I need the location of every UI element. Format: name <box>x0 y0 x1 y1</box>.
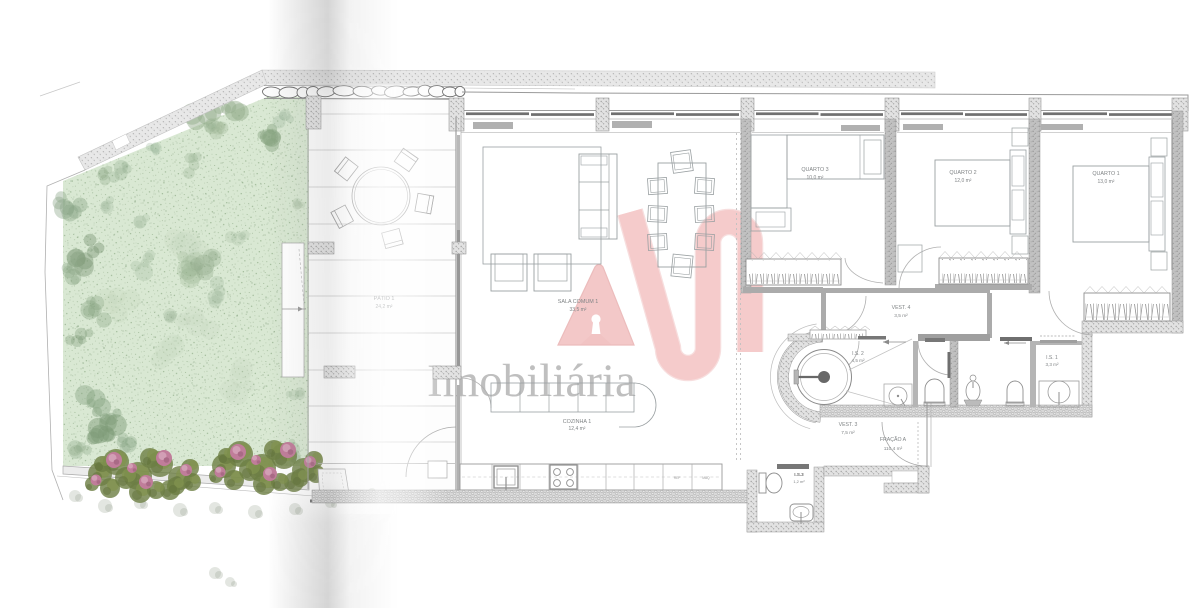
svg-text:QUARTO 3: QUARTO 3 <box>801 167 828 173</box>
svg-text:PÁTIO 1: PÁTIO 1 <box>374 295 395 302</box>
svg-text:1,2 m²: 1,2 m² <box>793 479 805 484</box>
svg-text:VEST. 3: VEST. 3 <box>839 422 858 428</box>
svg-text:FRAÇÃO A: FRAÇÃO A <box>880 436 907 443</box>
svg-text:3,5 m²: 3,5 m² <box>894 313 908 319</box>
svg-text:110,4 m²: 110,4 m² <box>884 446 903 452</box>
svg-text:12,4 m²: 12,4 m² <box>569 426 586 432</box>
svg-text:MAQ: MAQ <box>702 476 710 480</box>
svg-text:33,5 m²: 33,5 m² <box>570 307 587 313</box>
svg-text:REF: REF <box>674 476 680 480</box>
svg-text:COZINHA 1: COZINHA 1 <box>563 419 591 425</box>
svg-text:I.S.3: I.S.3 <box>794 472 804 477</box>
svg-text:QUARTO 1: QUARTO 1 <box>1092 171 1119 177</box>
svg-text:I.S. 2: I.S. 2 <box>852 351 864 357</box>
svg-text:13,0 m²: 13,0 m² <box>1098 179 1115 185</box>
svg-text:3,3 m²: 3,3 m² <box>1045 362 1058 367</box>
svg-text:VEST. 4: VEST. 4 <box>892 305 911 311</box>
svg-text:I.S. 1: I.S. 1 <box>1046 355 1058 361</box>
svg-text:10,0 m²: 10,0 m² <box>807 175 824 181</box>
svg-text:SALA COMUM 1: SALA COMUM 1 <box>558 299 598 305</box>
svg-text:4,5 m²: 4,5 m² <box>851 358 864 363</box>
svg-text:24,2 m²: 24,2 m² <box>376 304 393 310</box>
svg-text:QUARTO 2: QUARTO 2 <box>949 170 976 176</box>
svg-text:7,5 m²: 7,5 m² <box>841 430 855 436</box>
svg-text:12,0 m²: 12,0 m² <box>955 178 972 184</box>
